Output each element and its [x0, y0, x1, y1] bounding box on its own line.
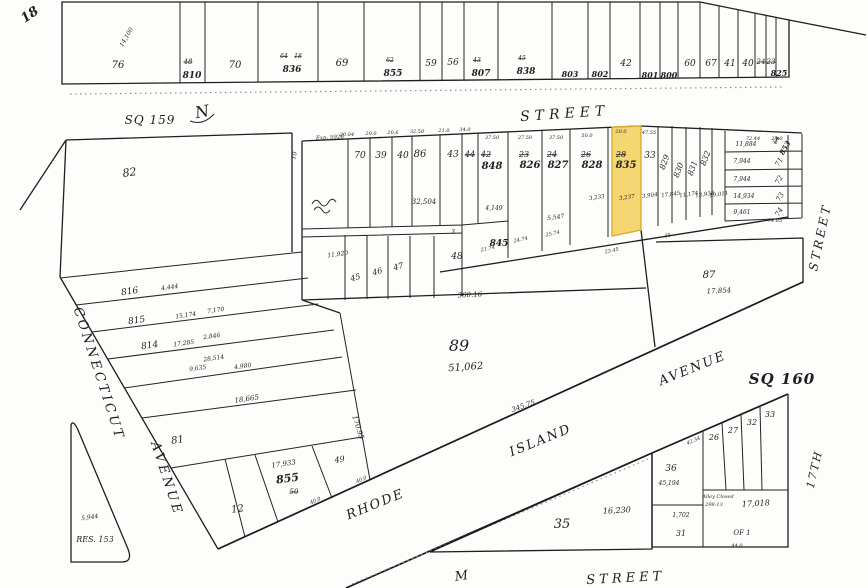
area-14934: 14,934 — [734, 193, 755, 200]
dim-3: 3 — [451, 229, 455, 236]
note-alley-closed: Alley Closed — [701, 494, 733, 500]
lot-26: 26 — [708, 433, 719, 442]
dim-37-50a: 37.50 — [485, 135, 500, 141]
lot-72: 72 — [774, 174, 786, 186]
area-5547: 5,547 — [547, 213, 565, 222]
lot-814: 814 — [141, 340, 160, 352]
lot-816: 816 — [121, 286, 140, 298]
street-name-m: M — [453, 568, 470, 585]
lot-46: 46 — [370, 266, 383, 278]
area-7944-a: 7,944 — [733, 158, 750, 165]
area-17018: 17,018 — [742, 498, 770, 508]
lot-81: 81 — [171, 434, 185, 447]
dim-20-84: 20.84 — [339, 132, 354, 138]
lot-803: 803 — [562, 69, 579, 79]
dim-35: 35 — [664, 232, 671, 239]
lot-82: 82 — [122, 165, 138, 180]
lot-826: 826 — [520, 160, 541, 171]
square-label-sq159: SQ 159 — [125, 113, 176, 127]
lot-45: 45 — [348, 272, 361, 284]
lot-36: 36 — [665, 464, 677, 474]
dim-44-0: 44.0 — [730, 543, 743, 549]
plat-map: 187614,100810487083664186985562595680743… — [0, 0, 868, 588]
lot-831: 831 — [686, 159, 700, 176]
old-lot-48: 48 — [183, 58, 193, 66]
dim-20-6: 20.6 — [386, 130, 399, 136]
old-lot-50: 50 — [290, 488, 299, 496]
area-17854: 17,854 — [706, 286, 731, 295]
lot-27: 27 — [727, 426, 739, 435]
lot-70: 70 — [354, 151, 366, 161]
lot-855-top: 855 — [384, 69, 403, 79]
lot-830: 830 — [672, 161, 686, 178]
old-lot-44: 44 — [464, 150, 475, 159]
old-lot-42: 42 — [480, 150, 491, 159]
parcel-82-outline — [20, 133, 292, 277]
lot-836: 836 — [283, 65, 303, 75]
lot-33: 33 — [644, 151, 656, 161]
lot-76: 76 — [112, 60, 125, 71]
old-lot-18: 18 — [294, 53, 302, 60]
old-lot-28: 28 — [615, 150, 626, 159]
dim-24-0: 24.0 — [770, 136, 783, 142]
lot-71: 71 — [774, 156, 785, 168]
old-lot-45: 45 — [517, 55, 526, 62]
old-lot-64: 64 — [280, 53, 288, 60]
lot-800: 800 — [661, 70, 678, 80]
dim-345-75: 345.75 — [510, 398, 536, 414]
area-3233: 3,233 — [589, 194, 606, 202]
dim-24-74: 24.74 — [512, 236, 528, 245]
lot-12: 12 — [231, 503, 245, 516]
area-9635: 9,635 — [189, 364, 207, 373]
north-arrow-letter: N — [193, 101, 212, 122]
dim-21-74: 21.74 — [479, 245, 495, 254]
lot-48: 48 — [450, 252, 463, 262]
dim-23-45: 23.45 — [603, 247, 619, 256]
area-11920: 11,920 — [327, 250, 349, 260]
lot-89: 89 — [449, 336, 469, 355]
dim-20-0b: 20.0 — [614, 129, 627, 135]
old-lot-23b: 23 — [518, 150, 529, 159]
dim-34-0: 34.0 — [459, 127, 471, 133]
lot-42: 42 — [619, 59, 632, 69]
lot-86: 86 — [414, 149, 427, 160]
street-shading-dots — [70, 87, 784, 94]
handwritten-scribble — [312, 199, 336, 213]
lot-49: 49 — [333, 454, 345, 464]
street-name-east: STREET — [806, 202, 834, 272]
sq160-lot-lines — [652, 407, 788, 547]
street-name-avenue-west: AVENUE — [147, 439, 186, 518]
lot-40-mid: 40 — [396, 151, 409, 161]
area-32504: 32,504 — [412, 198, 437, 206]
dim-27-50: 27.50 — [517, 135, 533, 141]
old-lot-24b: 24 — [546, 150, 557, 159]
lot-39: 39 — [375, 151, 387, 161]
old-lot-23: 23 — [766, 58, 776, 66]
area-51062: 51,062 — [448, 361, 484, 374]
lot-31: 31 — [676, 529, 686, 538]
square-label-sq160: SQ 160 — [749, 370, 815, 388]
lot-35: 35 — [554, 517, 571, 532]
old-lot-26: 26 — [580, 150, 591, 159]
highlighted-lot-835[interactable] — [612, 126, 641, 236]
lot-41: 41 — [723, 59, 735, 69]
area-17285: 17,285 — [173, 339, 195, 349]
dim-72-44: 72.44 — [746, 136, 760, 142]
lot-32: 32 — [747, 418, 757, 427]
area-45194: 45,194 — [658, 480, 680, 487]
lot-74: 74 — [774, 206, 785, 218]
dim-47-55: 47.55 — [641, 130, 656, 136]
area-28514: 28,514 — [202, 354, 225, 364]
street-name-north: STREET — [520, 103, 610, 125]
old-lot-43: 43 — [472, 57, 481, 64]
lot-832: 832 — [699, 149, 713, 166]
lot-807: 807 — [472, 69, 492, 79]
lot-838: 838 — [517, 67, 537, 77]
area-3904: 3,904 — [642, 192, 659, 200]
area-7944-b: 7,944 — [733, 176, 750, 183]
plat-page-number: 18 — [18, 4, 41, 27]
lot-47: 47 — [391, 261, 405, 273]
dim-21-0: 21.0 — [437, 128, 450, 134]
lot-827: 827 — [548, 160, 569, 171]
lot-855: 855 — [275, 470, 300, 486]
plat-map-page: 187614,100810487083664186985562595680743… — [0, 0, 868, 588]
dim-50-0: 50.0 — [581, 133, 593, 139]
dim-20-0a: 20.0 — [364, 131, 377, 137]
lot-828: 828 — [582, 160, 603, 171]
lot-801: 801 — [642, 70, 659, 80]
lot-829: 829 — [658, 153, 672, 170]
lot-835-highlighted: 835 — [616, 160, 637, 171]
lot-825: 825 — [771, 68, 788, 78]
lot-40: 40 — [741, 59, 754, 69]
dim-25-74: 25.74 — [544, 230, 560, 239]
dim-37-50b: 37.50 — [549, 135, 564, 141]
lot-67: 67 — [705, 59, 717, 69]
note-of-1: OF 1 — [733, 529, 750, 537]
lot-802: 802 — [592, 69, 609, 79]
lot-848: 848 — [482, 161, 503, 172]
area-5944: 5,944 — [81, 513, 99, 522]
street-name-17th: 17TH — [804, 449, 825, 490]
lot-70-top: 70 — [229, 60, 242, 71]
area-4444: 4,444 — [160, 283, 179, 292]
dim-32-50: 32.50 — [410, 129, 425, 135]
area-9461: 9,461 — [733, 209, 750, 216]
lot-35-outline — [430, 453, 652, 552]
dim-170-95: 170.95 — [350, 414, 365, 440]
street-name-connecticut: CONNECTICUT — [70, 305, 127, 442]
note-alley-ref: 298-13 — [704, 502, 723, 508]
dim-74-85: 74.85 — [768, 218, 782, 224]
street-name-avenue-diag: AVENUE — [656, 348, 729, 389]
area-2846: 2,846 — [202, 332, 221, 341]
area-14100: 14,100 — [118, 26, 135, 48]
lot-33-sq160: 33 — [765, 410, 775, 419]
area-11884: 11,884 — [736, 141, 757, 148]
lot-69: 69 — [336, 58, 349, 69]
dim-alley-10: 10 — [290, 151, 299, 160]
lot-810: 810 — [183, 71, 203, 81]
area-4149: 4,149 — [484, 205, 502, 212]
lot-87: 87 — [703, 270, 716, 281]
street-name-island: ISLAND — [506, 421, 574, 460]
old-lot-24: 24 — [756, 58, 766, 66]
rhode-island-avenue-north-edge — [218, 282, 803, 549]
lot-60: 60 — [684, 59, 696, 69]
lot-43: 43 — [446, 150, 459, 160]
lot-56: 56 — [447, 58, 459, 68]
area-19011: 19,011 — [709, 191, 729, 200]
old-lot-62: 62 — [386, 57, 394, 64]
area-17933: 17,933 — [271, 458, 297, 469]
street-name-rhode: RHODE — [343, 486, 407, 523]
street-name-south: STREET — [586, 569, 666, 588]
lot-59: 59 — [425, 59, 437, 69]
dim-360-16: 360.16 — [457, 290, 482, 299]
area-16230: 16,230 — [603, 505, 631, 515]
area-7170: 7,170 — [207, 306, 225, 315]
lot-73: 73 — [775, 191, 787, 203]
area-1702: 1,702 — [672, 512, 689, 519]
reservation-label: RES. 153 — [75, 535, 113, 544]
